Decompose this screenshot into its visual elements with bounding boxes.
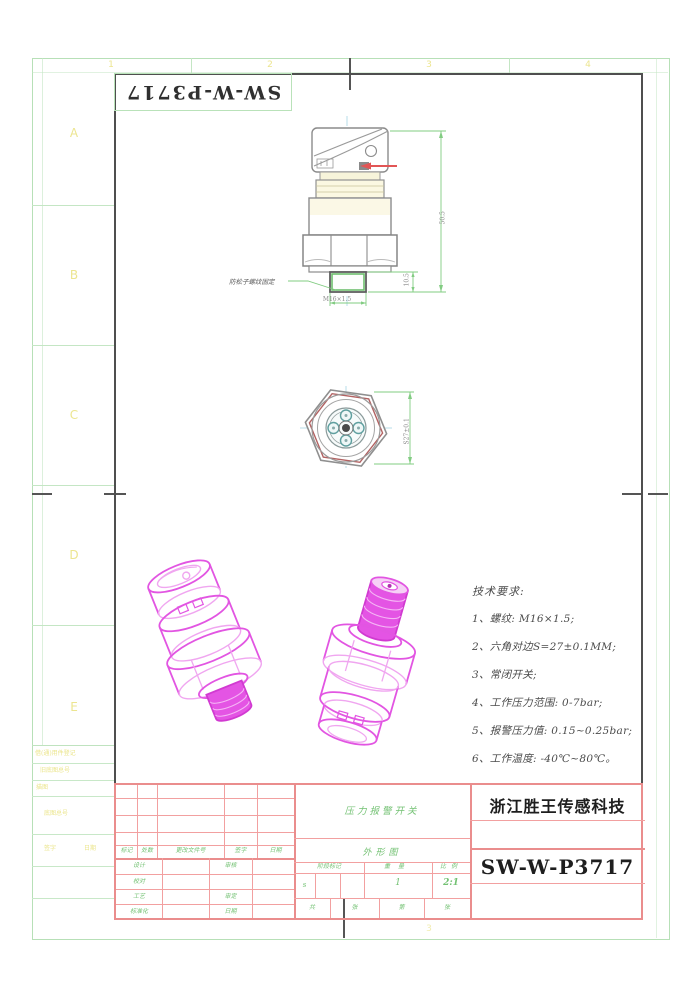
zone-divider xyxy=(509,58,510,73)
rev-header-count: 处数 xyxy=(137,847,157,855)
zone-divider xyxy=(32,485,114,486)
center-mark-left xyxy=(32,493,52,495)
stage-value: s xyxy=(294,881,315,889)
right-strip-line xyxy=(656,58,657,938)
zone-letter-d: D xyxy=(62,548,86,562)
center-mark-right xyxy=(648,493,668,495)
tech-requirement-line: 5、报警压力值: 0.15~0.25bar; xyxy=(472,723,647,738)
rev-header-date: 日期 xyxy=(257,847,294,855)
sig-approve: 审定 xyxy=(209,893,252,901)
sig-check: 审核 xyxy=(209,862,252,870)
weight-label: 重量 xyxy=(364,863,432,871)
top-view xyxy=(275,378,425,478)
rev-header-sign: 签字 xyxy=(224,847,257,855)
zone-divider xyxy=(32,345,114,346)
side-row-base-no: 底图总号 xyxy=(44,810,68,817)
flipped-part-number: SW-W-P3717 xyxy=(125,81,281,103)
side-row-old-no: 旧底图总号 xyxy=(40,767,70,774)
dim-thread-length: 10.5 xyxy=(404,257,411,287)
product-name: 压力报警开关 xyxy=(294,803,470,817)
sig-date: 日期 xyxy=(209,908,252,916)
scale-value: 2:1 xyxy=(432,879,470,887)
company-name: 浙江胜王传感科技 xyxy=(470,793,645,817)
tech-requirement-line: 3、常闭开关; xyxy=(472,667,647,682)
thread-callout: 防松子螺纹固定 xyxy=(229,276,275,286)
tech-requirements-title: 技术要求: xyxy=(472,583,647,599)
side-row-trace: 描图 xyxy=(36,784,48,791)
iso-views xyxy=(125,540,445,785)
zone-divider xyxy=(32,625,114,626)
rev-header-docno: 更改文件号 xyxy=(157,847,224,855)
zone-number: 2 xyxy=(255,60,285,70)
part-number: SW-W-P3717 xyxy=(470,855,645,879)
side-row-date: 日期 xyxy=(84,845,96,852)
zone-divider xyxy=(191,58,192,73)
scale-label: 比例 xyxy=(432,863,470,871)
weight-value: 1 xyxy=(364,879,432,887)
tech-requirement-line: 6、工作温度: -40℃~80℃。 xyxy=(472,751,647,766)
zone-number: 1 xyxy=(96,60,126,70)
drawing-type: 外形图 xyxy=(294,845,470,858)
stage-label: 阶段标记 xyxy=(294,863,364,871)
zone-letter-e: E xyxy=(62,700,86,714)
tech-requirements: 技术要求: 1、螺纹: M16×1.5; 2、六角对边S=27±0.1MM; 3… xyxy=(472,583,647,779)
tech-requirement-line: 2、六角对边S=27±0.1MM; xyxy=(472,639,647,654)
sig-design: 设计 xyxy=(116,862,162,870)
dim-across-flats: S27±0.1 xyxy=(404,411,411,445)
left-strip-line xyxy=(42,58,43,745)
dim-overall-height: 50.5 xyxy=(440,195,447,225)
side-table: 借(通)用件登记 旧底图总号 描图 底图总号 签字 日期 xyxy=(32,745,114,920)
sheets-unit: 张 xyxy=(330,904,379,912)
zone-number: 4 xyxy=(573,60,603,70)
title-block: 标记 处数 更改文件号 签字 日期 设计 审核 校对 工艺 审定 标准化 日期 xyxy=(114,783,643,920)
side-row-borrow: 借(通)用件登记 xyxy=(35,750,76,757)
sig-proof: 校对 xyxy=(116,878,162,886)
sheets-unit: 张 xyxy=(424,904,470,912)
tech-requirement-line: 4、工作压力范围: 0-7bar; xyxy=(472,695,647,710)
sig-standard: 标准化 xyxy=(116,908,162,916)
zone-number: 3 xyxy=(414,60,444,70)
iso-view-left xyxy=(134,550,277,734)
dim-thread-spec: M16×1.5 xyxy=(312,296,362,303)
sheets-no-label: 第 xyxy=(379,904,424,912)
zone-letter-a: A xyxy=(62,126,86,140)
rev-header-mark: 标记 xyxy=(116,847,137,855)
sig-process: 工艺 xyxy=(116,893,162,901)
sheets-total-label: 共 xyxy=(294,904,330,912)
iso-view-right xyxy=(304,567,433,753)
side-row-sign: 签字 xyxy=(44,845,56,852)
zone-letter-b: B xyxy=(62,268,86,282)
drawing-sheet: A B C D E 1 2 3 4 3 SW-W-P3717 xyxy=(0,0,700,990)
zone-number-bottom: 3 xyxy=(414,924,444,934)
tech-requirement-line: 1、螺纹: M16×1.5; xyxy=(472,611,647,626)
zone-letter-c: C xyxy=(62,408,86,422)
zone-divider xyxy=(32,205,114,206)
